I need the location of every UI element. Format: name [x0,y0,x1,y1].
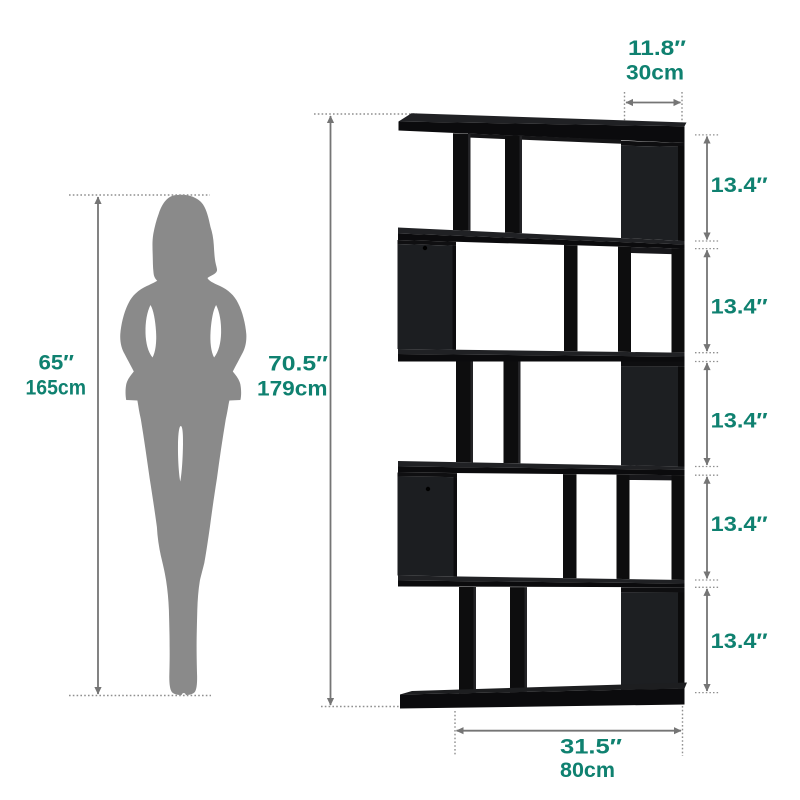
svg-text:165cm: 165cm [26,377,87,400]
svg-text:179cm: 179cm [257,377,328,400]
svg-text:13.4″: 13.4″ [711,410,768,433]
svg-text:13.4″: 13.4″ [711,174,768,197]
svg-text:80cm: 80cm [560,759,615,782]
svg-text:70.5″: 70.5″ [268,352,328,375]
svg-text:13.4″: 13.4″ [711,630,768,653]
svg-text:31.5″: 31.5″ [560,736,622,759]
svg-text:11.8″: 11.8″ [628,37,686,60]
svg-text:13.4″: 13.4″ [711,513,768,536]
svg-text:65″: 65″ [39,352,75,375]
svg-text:13.4″: 13.4″ [711,296,768,319]
svg-text:30cm: 30cm [626,62,684,85]
